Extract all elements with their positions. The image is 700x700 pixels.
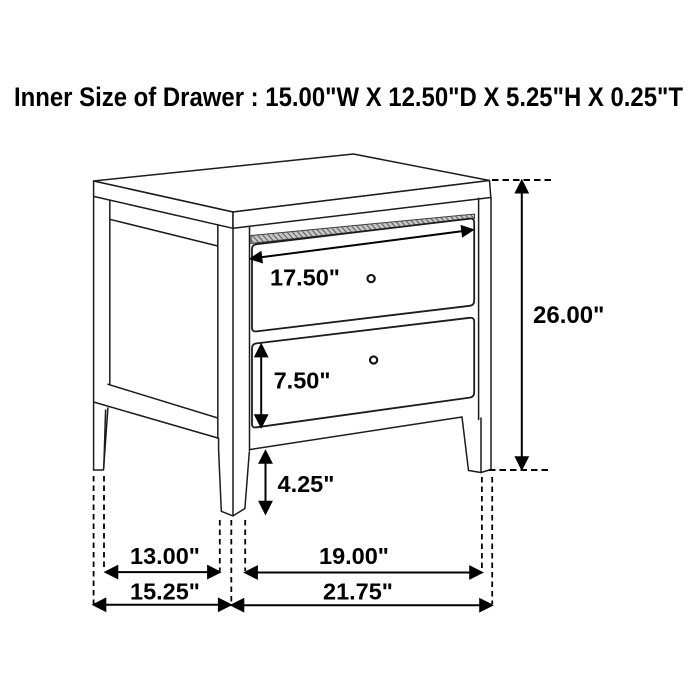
svg-text:Inner Size of Drawer : 15.00"W: Inner Size of Drawer : 15.00"W X 12.50"D… (14, 82, 683, 112)
svg-text:21.75": 21.75" (323, 579, 393, 605)
svg-text:17.50": 17.50" (270, 265, 340, 291)
svg-text:19.00": 19.00" (319, 543, 389, 569)
svg-text:15.25": 15.25" (130, 578, 200, 604)
svg-text:7.50": 7.50" (274, 368, 331, 394)
svg-text:26.00": 26.00" (533, 302, 604, 329)
svg-text:13.00": 13.00" (130, 543, 200, 569)
svg-text:4.25": 4.25" (278, 471, 335, 497)
